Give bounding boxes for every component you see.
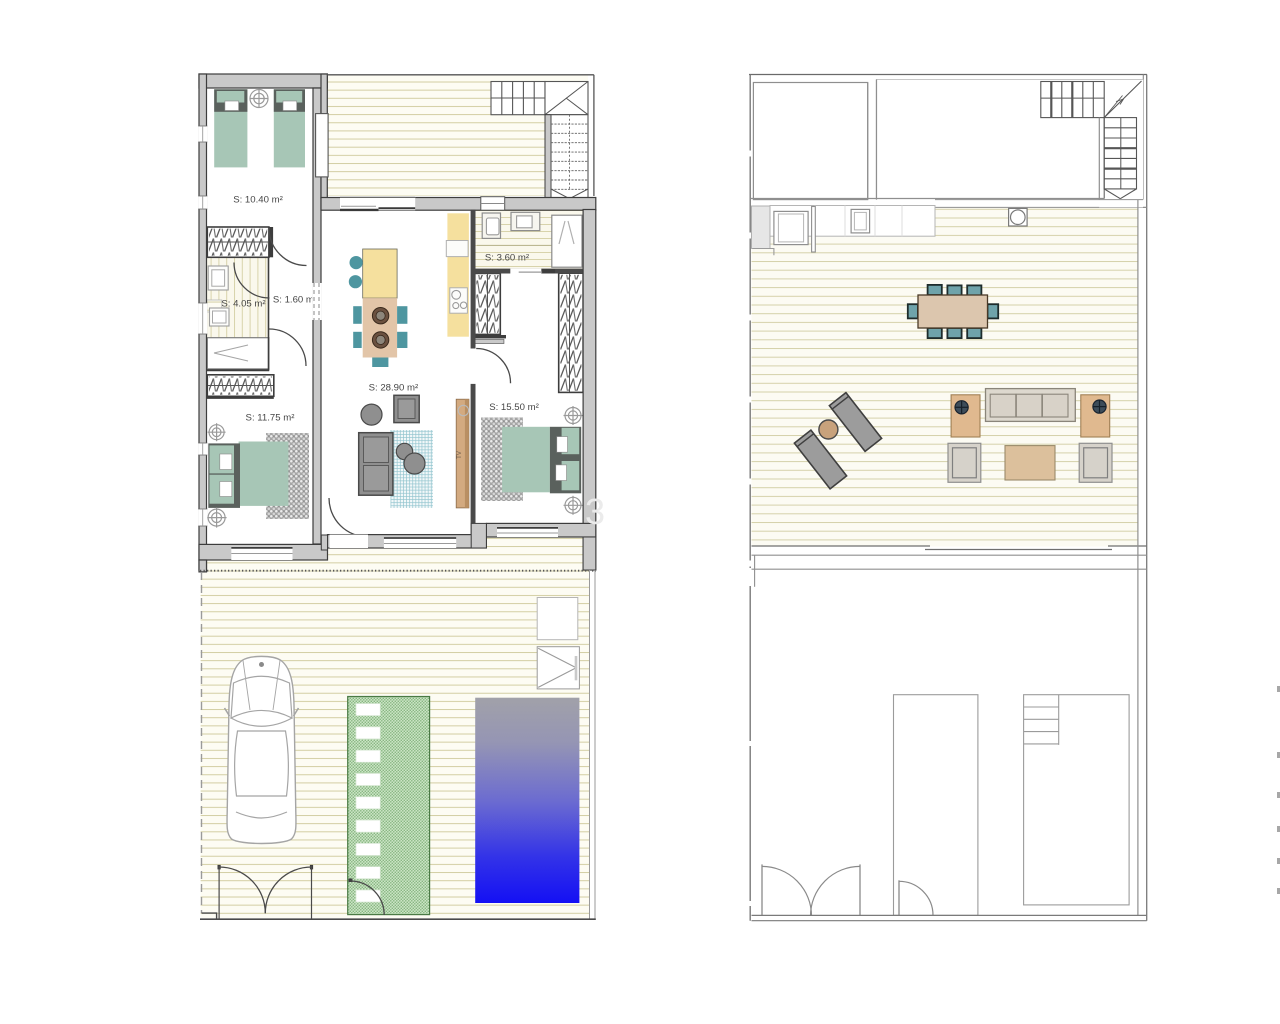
svg-text:S: 10.40 m²: S: 10.40 m² [233, 195, 283, 206]
svg-text:TV: TV [457, 451, 463, 459]
svg-text:3: 3 [585, 491, 605, 532]
svg-text:S: 3.60 m²: S: 3.60 m² [485, 253, 530, 264]
svg-text:S: 15.50 m²: S: 15.50 m² [489, 402, 539, 413]
svg-text:S: 4.05 m²: S: 4.05 m² [221, 299, 266, 310]
svg-text:S: 1.60 m²: S: 1.60 m² [273, 295, 318, 306]
svg-text:S: 11.75 m²: S: 11.75 m² [246, 413, 296, 424]
svg-text:S: 28.90 m²: S: 28.90 m² [369, 383, 419, 394]
